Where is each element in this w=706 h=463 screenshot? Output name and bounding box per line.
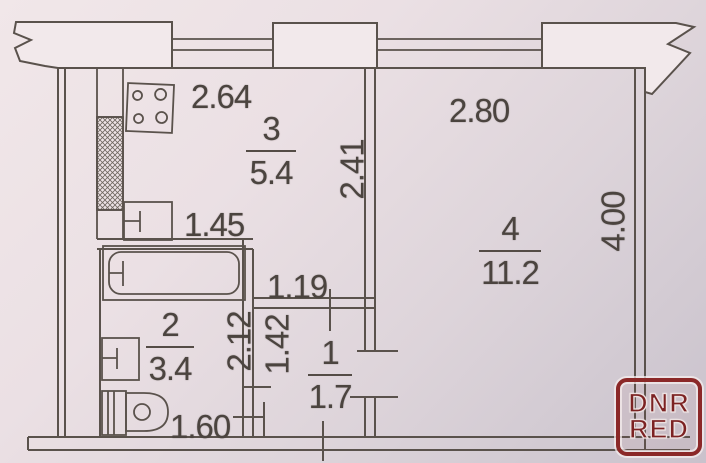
room-number: 2 — [146, 308, 194, 348]
dim-sink-run: 1.45 — [184, 208, 244, 241]
exterior-walls — [14, 22, 694, 450]
vent-shaft-hatch — [97, 117, 123, 210]
room-number: 4 — [479, 212, 541, 252]
tap-icon — [109, 261, 123, 286]
window-left — [172, 39, 273, 50]
watermark-line2: RED — [629, 417, 689, 443]
tap-icon — [124, 211, 140, 232]
vent-shaft — [97, 68, 123, 239]
wall-top-left — [14, 22, 172, 68]
stove-icon — [126, 83, 174, 133]
room-label-2: 2 3.4 — [146, 308, 194, 386]
room-label-4: 4 11.2 — [479, 212, 541, 290]
dim-room4-width: 2.80 — [449, 94, 509, 127]
dim-hall-width: 1.19 — [267, 270, 327, 303]
room-area: 5.4 — [246, 152, 296, 191]
floor-plan-photo: 2.64 2.80 1.45 1.19 1.60 2.41 4.00 2.12 … — [0, 0, 706, 463]
room-label-3: 3 5.4 — [246, 112, 296, 190]
bathtub-icon — [103, 246, 245, 300]
dim-kitchen-depth: 2.41 — [336, 137, 369, 203]
dim-bath-depth: 2.12 — [223, 309, 256, 375]
wall-pier — [273, 23, 377, 68]
room-area: 3.4 — [146, 348, 194, 387]
room-number: 1 — [308, 336, 352, 376]
washbasin-icon — [102, 338, 139, 380]
dim-kitchen-width: 2.64 — [191, 80, 251, 113]
room-area: 11.2 — [479, 252, 541, 291]
dim-bath-width: 1.60 — [170, 410, 230, 443]
window-right — [377, 39, 542, 50]
dnr-red-watermark: DNR RED — [616, 378, 702, 456]
kitchen-sink-icon — [124, 202, 172, 240]
room-number: 3 — [246, 112, 296, 152]
tap-icon — [102, 348, 117, 369]
room-label-1: 1 1.7 — [308, 336, 352, 414]
toilet-icon — [102, 391, 168, 435]
wall-bottom — [28, 437, 690, 450]
dim-room4-depth: 4.00 — [597, 189, 630, 255]
wall-kitchen-room4 — [365, 68, 375, 437]
wall-left — [58, 68, 65, 437]
dim-hall-depth: 1.42 — [261, 312, 294, 378]
wall-top-right — [542, 23, 694, 94]
room-area: 1.7 — [308, 376, 352, 415]
